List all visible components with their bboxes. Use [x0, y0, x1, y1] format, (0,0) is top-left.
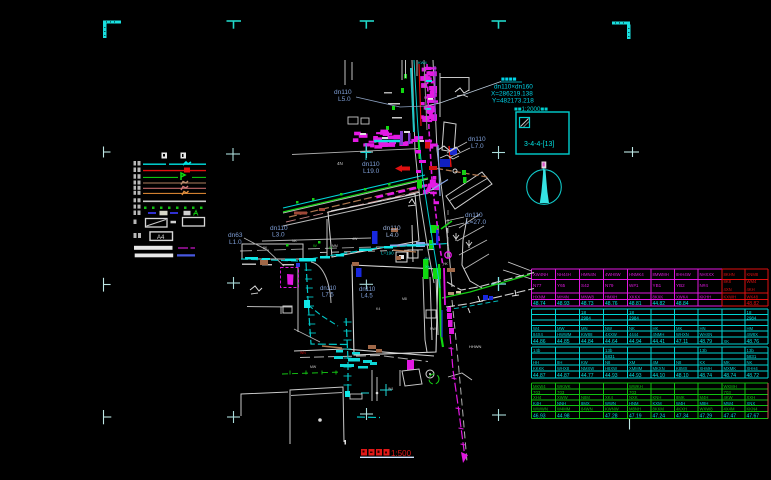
- svg-text:L19.0: L19.0: [363, 168, 380, 175]
- svg-text:44.77: 44.77: [581, 373, 594, 379]
- svg-text:WK48: WK48: [747, 295, 759, 300]
- svg-text:Y65: Y65: [557, 283, 566, 288]
- svg-text:MW: MW: [557, 326, 564, 331]
- svg-text:W4: W4: [533, 326, 540, 331]
- svg-text:KKKK: KKKK: [533, 366, 544, 371]
- svg-text:KW4: KW4: [418, 60, 427, 65]
- svg-text:NK: NK: [629, 326, 635, 331]
- svg-text:48.82: 48.82: [747, 301, 760, 307]
- svg-text:47.11: 47.11: [676, 339, 688, 345]
- svg-text:L5.0: L5.0: [338, 96, 351, 103]
- svg-text:W4H: W4H: [676, 401, 685, 406]
- svg-text:47.47: 47.47: [724, 414, 737, 420]
- svg-text:47.34: 47.34: [676, 414, 689, 420]
- svg-text:KX: KX: [700, 360, 706, 365]
- svg-text:MK: MK: [724, 360, 730, 365]
- svg-text:NK: NK: [747, 360, 753, 365]
- svg-text:M8NH: M8NH: [629, 407, 641, 412]
- svg-text:dn110: dn110: [334, 89, 352, 96]
- svg-text:HHWN: HHWN: [469, 344, 482, 349]
- svg-text:WHXN: WHXN: [676, 332, 689, 337]
- svg-text:2984: 2984: [629, 315, 639, 320]
- svg-text:XMMM: XMMM: [629, 366, 643, 371]
- svg-text:KXWH: KXWH: [724, 295, 737, 300]
- svg-text:WWKH: WWKH: [629, 384, 643, 389]
- svg-text:HK: HK: [653, 326, 659, 331]
- svg-text:48.74: 48.74: [724, 373, 737, 379]
- svg-text:XKKX: XKKX: [629, 295, 640, 300]
- svg-text:A4: A4: [157, 235, 165, 241]
- svg-text:8HH4W: 8HH4W: [676, 272, 691, 277]
- svg-text:48.74: 48.74: [700, 373, 713, 379]
- svg-text:44.82: 44.82: [653, 301, 666, 307]
- svg-text:H: H: [329, 245, 332, 250]
- svg-text:MW: MW: [310, 365, 317, 369]
- svg-text:NHXXX: NHXXX: [700, 272, 715, 277]
- svg-text:W: W: [313, 243, 317, 248]
- svg-text:dn63: dn63: [228, 232, 243, 239]
- svg-text:XH4: XH4: [533, 395, 542, 400]
- svg-text:N8M: N8M: [581, 395, 590, 400]
- svg-text:44.64: 44.64: [605, 339, 618, 345]
- svg-text:L1.0: L1.0: [229, 239, 242, 246]
- svg-text:5831: 5831: [747, 354, 757, 359]
- svg-text:N79: N79: [605, 283, 614, 288]
- svg-text:KKN4: KKN4: [747, 407, 759, 412]
- svg-text:HN: HN: [700, 326, 706, 331]
- svg-text:4N: 4N: [337, 161, 343, 166]
- svg-text:4W: 4W: [352, 237, 358, 241]
- svg-text:44.93: 44.93: [629, 373, 642, 379]
- svg-text:L3.0: L3.0: [272, 232, 285, 239]
- svg-text:44.93: 44.93: [605, 373, 618, 379]
- svg-text:L4.5: L4.5: [361, 294, 373, 300]
- svg-text:MW4: MW4: [724, 401, 734, 406]
- svg-text:44.84: 44.84: [581, 339, 594, 345]
- svg-text:dn110: dn110: [468, 136, 486, 143]
- svg-text:NXK: NXK: [629, 395, 638, 400]
- svg-text:4WH8W: 4WH8W: [605, 272, 621, 277]
- svg-text:44.87: 44.87: [557, 373, 570, 379]
- svg-text:N8: N8: [676, 360, 682, 365]
- svg-text:8KHN: 8KHN: [724, 272, 735, 277]
- svg-text:dn110: dn110: [465, 212, 483, 219]
- svg-text:dn110×dn160: dn110×dn160: [494, 84, 533, 91]
- svg-text:MK: MK: [676, 326, 682, 331]
- svg-text:MXMK: MXMK: [724, 366, 737, 371]
- svg-text:48.76: 48.76: [747, 339, 760, 345]
- svg-text:47.28: 47.28: [605, 414, 618, 420]
- svg-text:8H: 8H: [557, 360, 562, 365]
- svg-text:4M: 4M: [653, 360, 659, 365]
- svg-text:4N: 4N: [424, 256, 429, 261]
- svg-text:HWWM: HWWM: [557, 332, 572, 337]
- svg-text:703: 703: [724, 390, 732, 395]
- svg-text:3-4-4-[13]: 3-4-4-[13]: [524, 141, 554, 148]
- svg-text:XHMH: XHMH: [700, 366, 712, 371]
- svg-text:8MWMH: 8MWMH: [653, 272, 669, 277]
- svg-text:4XN: 4XN: [724, 287, 732, 292]
- svg-text:MNW8: MNW8: [581, 295, 594, 300]
- svg-text:44.87: 44.87: [533, 373, 546, 379]
- svg-text:S42: S42: [581, 283, 590, 288]
- svg-text:WN: WN: [300, 351, 306, 355]
- svg-text:44.85: 44.85: [557, 339, 570, 345]
- svg-text:L=27.0: L=27.0: [466, 219, 486, 226]
- svg-text:8K8: 8K8: [724, 279, 732, 284]
- svg-text:703: 703: [533, 390, 541, 395]
- svg-text:48.10: 48.10: [676, 373, 689, 379]
- svg-text:84WN: 84WN: [581, 407, 593, 412]
- svg-text:XW4NH: XW4NH: [533, 272, 548, 277]
- svg-text:5831: 5831: [605, 354, 615, 359]
- svg-text:KXM: KXM: [653, 401, 663, 406]
- svg-text:NMXW: NMXW: [581, 366, 594, 371]
- svg-text:48.79: 48.79: [700, 339, 713, 345]
- svg-text:MKW4: MKW4: [533, 384, 546, 389]
- svg-text:4444: 4444: [629, 332, 639, 337]
- svg-text:2984: 2984: [747, 315, 757, 320]
- svg-text:HMXH: HMXH: [605, 295, 617, 300]
- svg-text:48.81: 48.81: [629, 301, 642, 307]
- svg-text:WHXN: WHXN: [700, 332, 713, 337]
- svg-text:4NMH: 4NMH: [653, 332, 665, 337]
- svg-text:47.67: 47.67: [747, 414, 760, 420]
- svg-text:8MX: 8MX: [581, 401, 590, 406]
- svg-text:44.94: 44.94: [629, 339, 642, 345]
- svg-text:47.24: 47.24: [653, 414, 666, 420]
- svg-text:KW88: KW88: [581, 332, 593, 337]
- svg-text:8MK: 8MK: [676, 395, 685, 400]
- svg-text:KNH: KNH: [653, 395, 662, 400]
- svg-text:K4: K4: [376, 307, 380, 311]
- svg-text:47.29: 47.29: [700, 414, 713, 420]
- svg-text:HXNM: HXNM: [533, 295, 546, 300]
- svg-text:48.84: 48.84: [676, 301, 689, 307]
- svg-text:L4.0: L4.0: [386, 232, 399, 239]
- svg-text:WWWN: WWWN: [533, 407, 548, 412]
- svg-text:8KKM: 8KKM: [653, 407, 665, 412]
- svg-text:dn110: dn110: [383, 225, 401, 232]
- svg-text:HNM: HNM: [629, 401, 639, 406]
- svg-text:8KXK: 8KXK: [653, 295, 664, 300]
- svg-text:XM: XM: [629, 360, 636, 365]
- svg-text:MKXN: MKXN: [653, 366, 665, 371]
- svg-text:KKHH: KKHH: [700, 295, 712, 300]
- svg-text:■■1:2000■■: ■■1:2000■■: [514, 106, 548, 113]
- svg-text:WKMH: WKMH: [724, 384, 737, 389]
- svg-text:H8XW: H8XW: [605, 366, 617, 371]
- svg-text:NH44H: NH44H: [557, 272, 571, 277]
- svg-text:46.93: 46.93: [533, 414, 546, 420]
- svg-text:KNM8: KNM8: [747, 272, 759, 277]
- svg-text:NW: NW: [430, 327, 437, 331]
- svg-text:48.93: 48.93: [557, 301, 570, 307]
- svg-text:WWN: WWN: [605, 401, 616, 406]
- svg-text:44.86: 44.86: [533, 339, 546, 345]
- svg-text:M4H: M4H: [700, 395, 709, 400]
- svg-text:13b: 13b: [700, 348, 708, 353]
- svg-text:44.41: 44.41: [653, 339, 666, 345]
- svg-text:XK4: XK4: [605, 395, 614, 400]
- svg-text:K4H: K4H: [533, 401, 541, 406]
- svg-text:MN: MN: [581, 326, 588, 331]
- svg-text:18: 18: [629, 310, 634, 315]
- svg-text:4X4M: 4X4M: [724, 407, 735, 412]
- svg-text:L=190: L=190: [381, 251, 394, 256]
- svg-text:L7.5: L7.5: [322, 293, 334, 299]
- svg-text:14b: 14b: [533, 348, 541, 353]
- svg-text:84X4: 84X4: [533, 332, 543, 337]
- svg-text:HMN4N: HMN4N: [581, 272, 596, 277]
- svg-text:2984: 2984: [581, 315, 591, 320]
- svg-text:44.98: 44.98: [557, 414, 570, 420]
- svg-text:703: 703: [557, 390, 565, 395]
- svg-text:4XXW: 4XXW: [605, 332, 617, 337]
- svg-text:KW: KW: [581, 360, 588, 365]
- svg-text:WHX8: WHX8: [557, 366, 570, 371]
- svg-text:18: 18: [747, 310, 752, 315]
- svg-text:KWNW: KWNW: [605, 407, 619, 412]
- svg-text:XNX: XNX: [747, 401, 756, 406]
- svg-text:4W8X: 4W8X: [747, 332, 759, 337]
- svg-text:N#4: N#4: [700, 283, 709, 288]
- svg-text:XK: XK: [724, 339, 730, 344]
- svg-text:W#1: W#1: [629, 283, 639, 288]
- svg-text:18: 18: [581, 310, 586, 315]
- svg-text:48.73: 48.73: [581, 301, 594, 307]
- svg-text:X=286219.138: X=286219.138: [491, 91, 533, 98]
- svg-text:XM: XM: [425, 264, 431, 269]
- svg-text:WKWK: WKWK: [557, 384, 571, 389]
- svg-text:W4: W4: [388, 387, 393, 391]
- svg-text:HNMK4: HNMK4: [629, 272, 644, 277]
- svg-text:703: 703: [629, 390, 637, 395]
- svg-text:WXW8: WXW8: [700, 407, 714, 412]
- svg-text:4KH: 4KH: [747, 287, 755, 292]
- svg-text:WM4: WM4: [747, 279, 757, 284]
- svg-text:HM: HM: [747, 326, 754, 331]
- svg-text:YB1: YB1: [653, 283, 662, 288]
- svg-text:XWW: XWW: [557, 395, 568, 400]
- svg-text:MH4N: MH4N: [557, 295, 569, 300]
- svg-text:MM: MM: [332, 244, 338, 248]
- svg-text:YB2: YB2: [676, 283, 685, 288]
- svg-text:4KXH: 4KXH: [676, 407, 687, 412]
- svg-text:HK: HK: [443, 262, 449, 266]
- svg-text:XXH: XXH: [747, 395, 756, 400]
- svg-text:13b: 13b: [605, 348, 613, 353]
- svg-text:M8: M8: [402, 297, 407, 301]
- svg-text:dn110: dn110: [320, 286, 337, 292]
- svg-text:N8: N8: [605, 360, 611, 365]
- svg-text:8K: 8K: [263, 246, 268, 250]
- svg-text:N77: N77: [533, 283, 542, 288]
- svg-text:NW: NW: [605, 326, 612, 331]
- svg-text:W4MM: W4MM: [557, 407, 571, 412]
- svg-text:XWK4: XWK4: [676, 295, 689, 300]
- svg-text:HH: HH: [533, 360, 539, 365]
- svg-text:48.74: 48.74: [533, 301, 546, 307]
- svg-text:NNH: NNH: [557, 401, 566, 406]
- svg-text:dn110: dn110: [362, 161, 380, 168]
- svg-text:4KW: 4KW: [724, 395, 733, 400]
- svg-text:M8H: M8H: [700, 401, 709, 406]
- svg-text:K8MX: K8MX: [676, 366, 688, 371]
- svg-text:L7.0: L7.0: [471, 143, 484, 150]
- svg-text:44.10: 44.10: [653, 373, 666, 379]
- svg-text:13b: 13b: [747, 348, 755, 353]
- svg-text:47.19: 47.19: [629, 414, 642, 420]
- svg-text:48.72: 48.72: [747, 373, 760, 379]
- svg-text:dn110: dn110: [359, 287, 376, 293]
- svg-text:48.76: 48.76: [605, 301, 618, 307]
- svg-text:Y=482173.218: Y=482173.218: [492, 98, 534, 105]
- svg-text:XHH4: XHH4: [747, 366, 759, 371]
- svg-text:NK: NK: [292, 239, 298, 243]
